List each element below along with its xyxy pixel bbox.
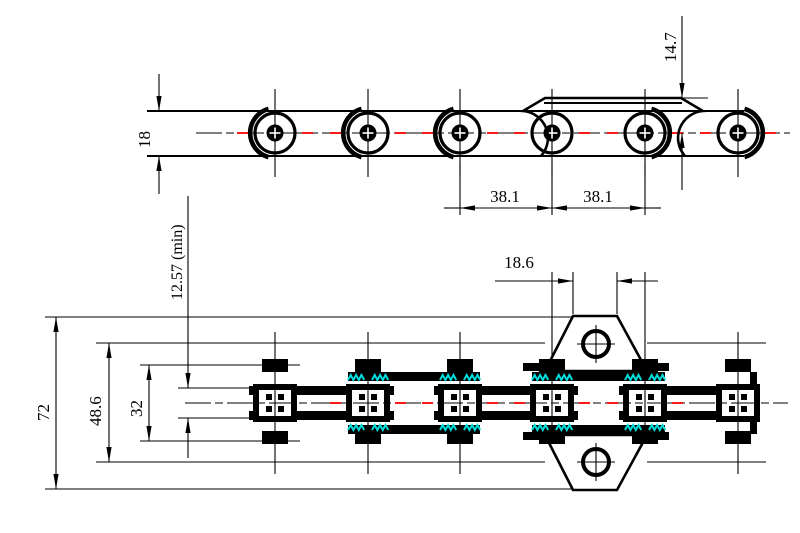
bushing-mark xyxy=(741,406,747,412)
dim-pin-length: 48.6 xyxy=(86,343,109,462)
bushing-mark xyxy=(555,406,561,412)
dim-pitch: 38.1 38.1 xyxy=(444,162,661,215)
dim-label-pitch-left: 38.1 xyxy=(490,187,520,206)
drawing-canvas: 18 14.7 38.1 38.1 xyxy=(0,0,800,533)
bushing-mark xyxy=(266,394,272,400)
bushing-mark xyxy=(636,406,642,412)
bushing-mark xyxy=(278,394,284,400)
dim-label-48-6: 48.6 xyxy=(86,396,105,426)
dim-label-18-6: 18.6 xyxy=(504,253,534,272)
dim-label-72: 72 xyxy=(34,404,53,421)
bushing-mark xyxy=(741,394,747,400)
bushing-mark xyxy=(729,394,735,400)
dim-label-32: 32 xyxy=(127,400,146,417)
bushing-mark xyxy=(451,394,457,400)
chain-technical-drawing: 18 14.7 38.1 38.1 xyxy=(0,0,800,533)
dim-overall-width: 72 xyxy=(34,317,56,489)
bushing-mark xyxy=(729,406,735,412)
dim-label-pitch-right: 38.1 xyxy=(583,187,613,206)
bushing-mark xyxy=(555,394,561,400)
bushing-mark xyxy=(543,406,549,412)
bushing-mark xyxy=(371,406,377,412)
dim-attachment-top-width: 18.6 xyxy=(495,253,658,314)
bushing-mark xyxy=(371,394,377,400)
bushing-mark xyxy=(278,406,284,412)
dim-label-14-7: 14.7 xyxy=(661,32,680,62)
dim-over-plates: 32 xyxy=(127,365,149,441)
bushing-mark xyxy=(636,394,642,400)
bushing-mark xyxy=(359,406,365,412)
side-view: 18 14.7 38.1 38.1 xyxy=(135,16,790,215)
dim-min-inner-width: 12.57 (min) xyxy=(169,196,188,458)
bushing-mark xyxy=(359,394,365,400)
plan-pins-and-rollers xyxy=(256,272,757,474)
dim-label-12-57-min: 12.57 (min) xyxy=(169,224,186,300)
dim-label-18: 18 xyxy=(135,131,154,148)
dim-roller-od: 18 xyxy=(135,74,159,194)
bushing-mark xyxy=(463,406,469,412)
bushing-mark xyxy=(266,406,272,412)
plan-view: 72 48.6 32 12.57 (min) 18.6 xyxy=(34,196,788,490)
bushing-mark xyxy=(463,394,469,400)
bushing-mark xyxy=(451,406,457,412)
bushing-mark xyxy=(543,394,549,400)
bushing-mark xyxy=(648,394,654,400)
bushing-mark xyxy=(648,406,654,412)
